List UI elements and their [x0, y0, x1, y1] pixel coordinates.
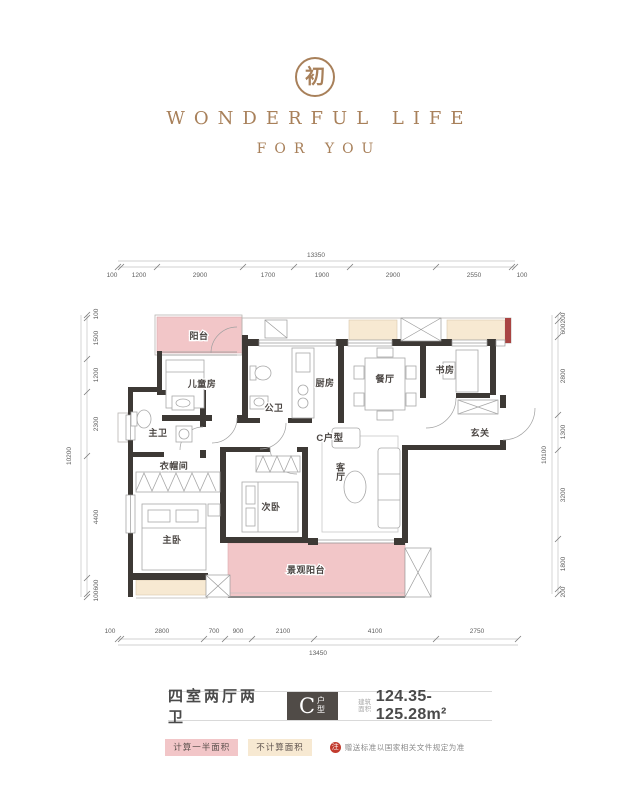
room-label-living: 客厅	[335, 461, 346, 482]
brand-line-1: WONDERFUL LIFE	[0, 108, 630, 129]
room-label-cloakroom: 衣帽间	[160, 460, 189, 471]
dim-left-3: 2300	[93, 416, 100, 431]
room-label-balcony: 阳台	[189, 330, 208, 341]
area-value: 124.35-125.28m²	[376, 688, 492, 724]
dim-right-1: 600	[560, 323, 567, 334]
dim-left-6: 100	[93, 590, 100, 601]
red-marked-wall	[505, 318, 511, 343]
sofa	[378, 448, 400, 528]
dim-top-7: 100	[517, 272, 528, 279]
dining-table	[365, 358, 405, 410]
unit-type-box: C 户型	[287, 692, 338, 720]
room-label-dining: 餐厅	[374, 373, 394, 384]
dim-left-5: 600	[93, 579, 100, 590]
legend: 计算一半面积 不计算面积 注 赠送标准以国家相关文件规定为准	[0, 739, 630, 756]
dim-top-5: 2900	[386, 272, 401, 279]
dim-left-4: 4400	[93, 509, 100, 524]
dim-top-6: 2550	[467, 272, 482, 279]
dim-bottom-4: 2100	[276, 628, 291, 635]
master-toilet	[131, 412, 137, 426]
dim-right-4: 3200	[560, 487, 567, 502]
dim-top-0: 100	[107, 272, 118, 279]
room-label-kitchen: 厨房	[315, 377, 334, 388]
hall-basin	[176, 426, 192, 442]
dim-left-1: 1500	[93, 330, 100, 345]
dim-top-4: 1900	[315, 272, 330, 279]
legend-note: 注 赠送标准以国家相关文件规定为准	[330, 742, 465, 753]
room-label-kids-room: 儿童房	[187, 378, 217, 389]
dim-top-1: 1200	[132, 272, 147, 279]
brand-line-2: FOR YOU	[0, 141, 630, 157]
dim-left-2: 1200	[93, 367, 100, 382]
note-text: 赠送标准以国家相关文件规定为准	[345, 742, 465, 753]
dim-bottom-6: 2750	[470, 628, 485, 635]
study-desk	[456, 350, 478, 392]
room-label-master-bedroom: 主卧	[162, 534, 181, 545]
room-label-public-bath: 公卫	[264, 403, 283, 413]
unit-suffix: 户型	[317, 697, 326, 715]
dim-right-6: 200	[560, 586, 567, 597]
room-label-foyer: 玄关	[470, 427, 489, 438]
dim-left-total: 10200	[66, 447, 73, 465]
dim-top-3: 1700	[261, 272, 276, 279]
dim-right-3: 1300	[560, 424, 567, 439]
legend-no-area: 不计算面积	[248, 739, 312, 756]
dim-bottom-3: 900	[233, 628, 244, 635]
coffee-table	[344, 471, 366, 503]
dim-bottom-1: 2800	[155, 628, 170, 635]
layout-text: 四室两厅两卫	[168, 685, 267, 727]
floor-plan: 阳台 儿童房 主卫 衣帽间 主卧 次卧 公卫 厨房 餐厅 书房 玄关 客厅 景观…	[60, 240, 570, 670]
dim-top-2: 2900	[193, 272, 208, 279]
room-label-view-balcony: 景观阳台	[287, 564, 325, 575]
area-block: 建筑面积 124.35-125.28m²	[358, 688, 492, 724]
unit-info-bar: 四室两厅两卫 C 户型 建筑面积 124.35-125.28m²	[168, 691, 492, 721]
floor-plan-svg: 阳台 儿童房 主卫 衣帽间 主卧 次卧 公卫 厨房 餐厅 书房 玄关 客厅 景观…	[60, 240, 570, 670]
master-basin	[172, 396, 194, 410]
area-label: 建筑面积	[358, 699, 372, 714]
plan-unit-label: C户型	[316, 432, 343, 444]
dim-bottom-5: 4100	[368, 628, 383, 635]
dim-bottom-2: 700	[209, 628, 220, 635]
room-label-study: 书房	[435, 364, 454, 375]
dim-top-total: 13350	[307, 252, 325, 259]
dim-right-2: 2800	[560, 368, 567, 383]
dim-left-0: 100	[93, 308, 100, 319]
dim-bottom-total: 13450	[309, 650, 327, 657]
legend-half-area: 计算一半面积	[165, 739, 238, 756]
dim-bottom-0: 100	[105, 628, 116, 635]
note-badge-icon: 注	[330, 742, 341, 753]
unit-letter: C	[299, 696, 315, 717]
brand-seal-icon: 初	[295, 57, 335, 97]
dim-right-total: 10100	[541, 446, 548, 464]
room-label-master-bath: 主卫	[148, 427, 167, 438]
dim-right-0: 200	[560, 312, 567, 323]
kitchen-sink	[296, 353, 310, 372]
room-label-second-bedroom: 次卧	[261, 501, 280, 512]
dim-right-5: 1800	[560, 556, 567, 571]
